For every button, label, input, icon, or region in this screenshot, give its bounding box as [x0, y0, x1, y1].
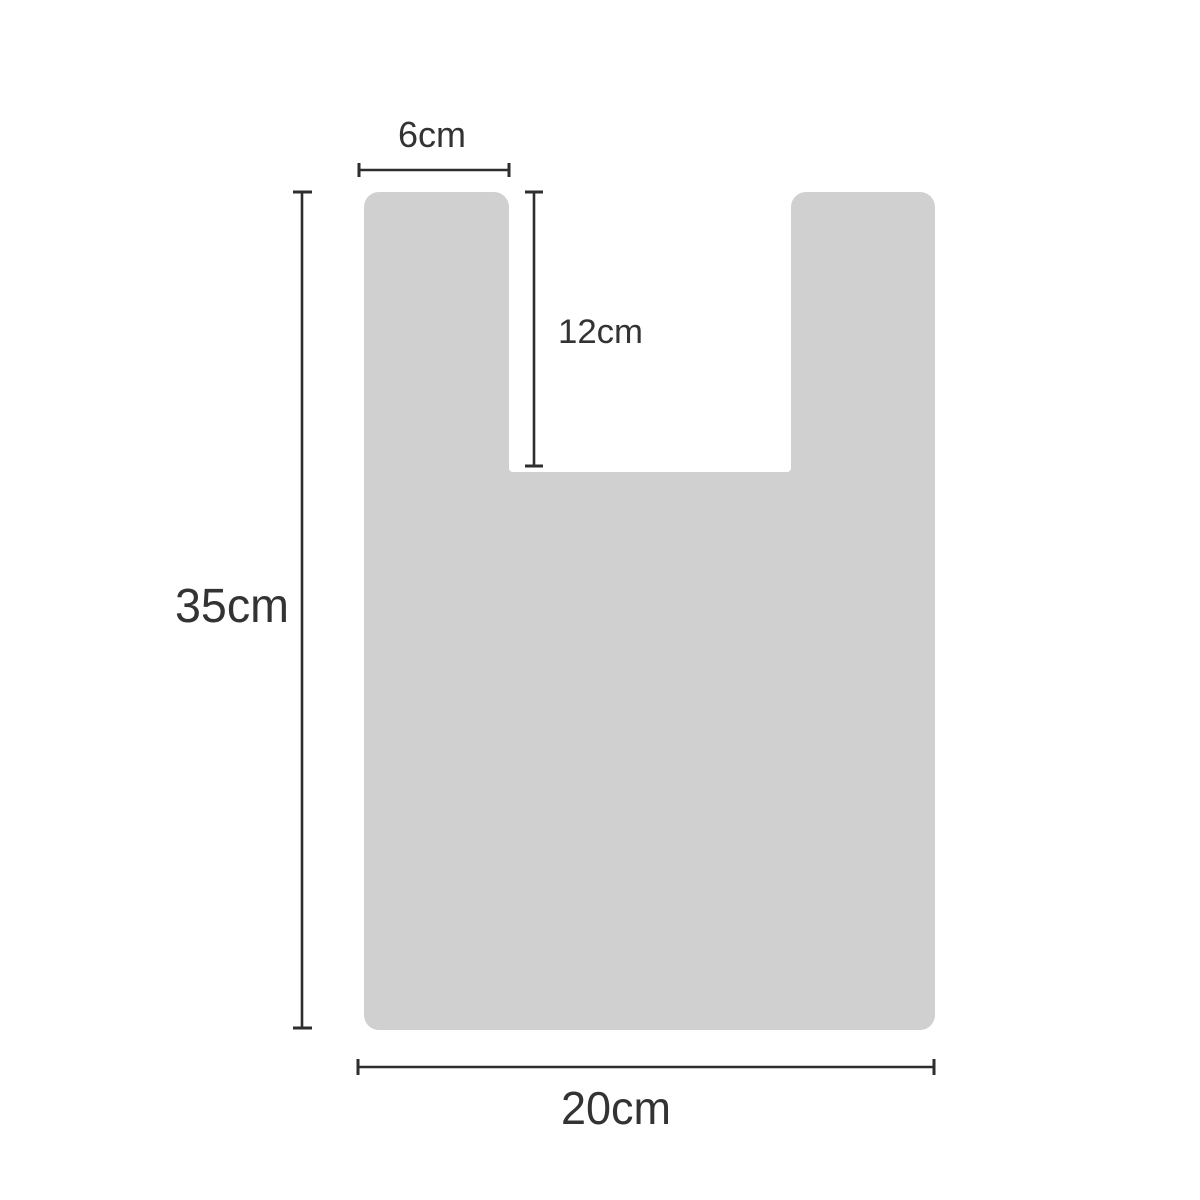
svg-text:35cm: 35cm [175, 580, 289, 633]
svg-text:6cm: 6cm [398, 114, 466, 155]
svg-text:20cm: 20cm [561, 1082, 671, 1134]
svg-text:12cm: 12cm [558, 313, 643, 351]
